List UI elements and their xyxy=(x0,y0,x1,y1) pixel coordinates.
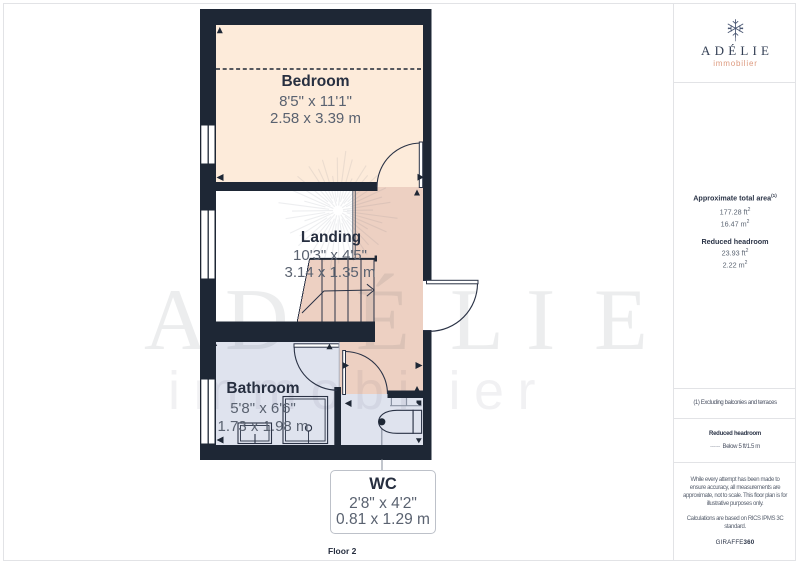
svg-text:É: É xyxy=(356,272,410,369)
svg-text:A: A xyxy=(144,272,208,369)
svg-text:I: I xyxy=(526,272,555,369)
svg-text:E: E xyxy=(594,272,648,369)
svg-text:D: D xyxy=(225,272,289,369)
